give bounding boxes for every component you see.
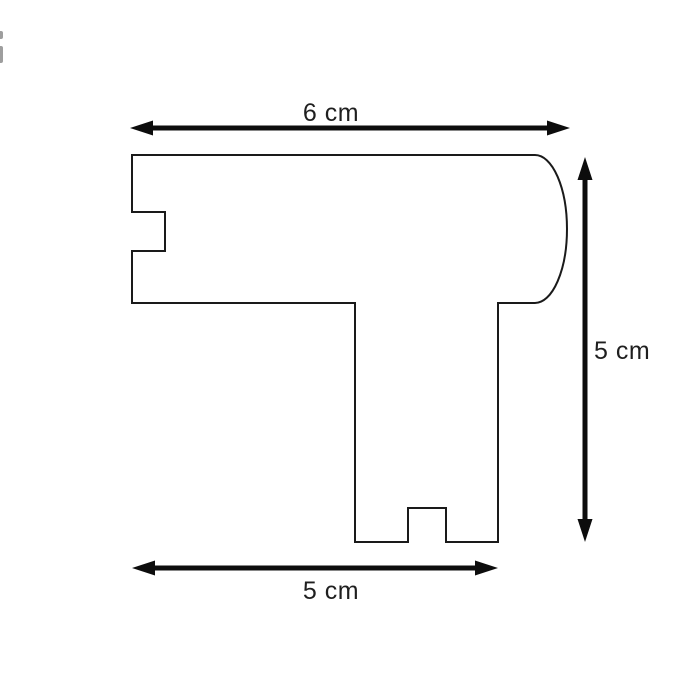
left-edge-artifact-mark-bottom (0, 46, 3, 63)
bottom-width-dimension-label: 5 cm (303, 577, 359, 605)
bottom-dimension-arrowhead-right (475, 561, 498, 576)
left-edge-artifact (0, 31, 3, 63)
right-height-dimension: 5 cm (578, 157, 651, 542)
top-width-dimension-label: 6 cm (303, 99, 359, 127)
top-dimension-arrowhead-right (547, 121, 570, 136)
profile-technical-drawing: 6 cm 5 cm 5 cm (0, 0, 700, 700)
profile-outline (132, 155, 567, 542)
bottom-width-dimension: 5 cm (132, 561, 498, 606)
drawing-canvas: 6 cm 5 cm 5 cm (0, 0, 700, 700)
top-dimension-arrowhead-left (130, 121, 153, 136)
right-dimension-arrowhead-bottom (578, 519, 593, 542)
left-edge-artifact-mark-top (0, 31, 3, 39)
bottom-dimension-arrowhead-left (132, 561, 155, 576)
right-dimension-arrowhead-top (578, 157, 593, 180)
top-width-dimension: 6 cm (130, 99, 570, 136)
right-height-dimension-label: 5 cm (594, 337, 650, 365)
